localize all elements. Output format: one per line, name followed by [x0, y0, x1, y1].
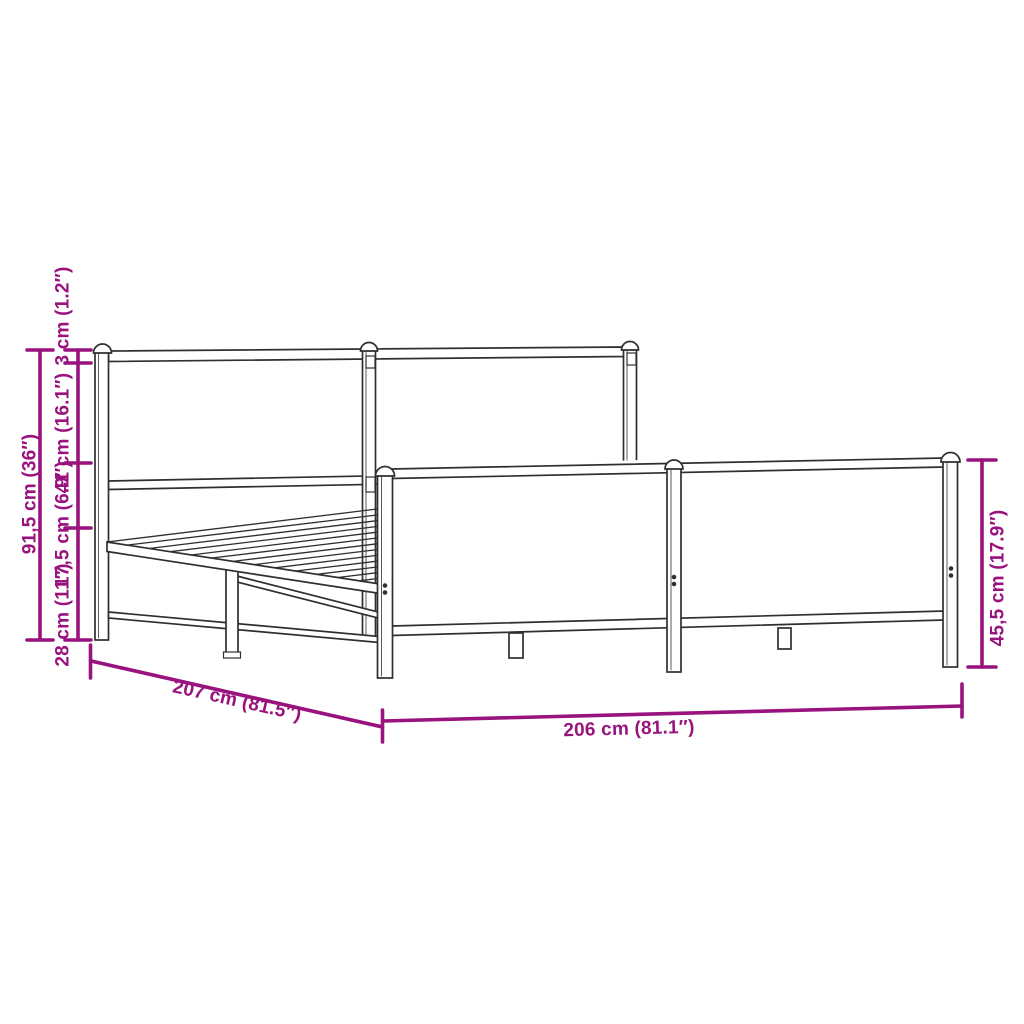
- footboard-height-label: 45,5 cm (17.9″): [989, 510, 1008, 647]
- side-rail: [107, 542, 380, 594]
- post-cap: [361, 343, 378, 352]
- footboard: [376, 453, 961, 684]
- total-height-label: 91,5 cm (36″): [21, 434, 40, 555]
- bed-base: [107, 509, 394, 658]
- bed-frame-line-art: [0, 0, 1024, 1024]
- support-leg: [509, 633, 523, 658]
- post-cap: [94, 344, 112, 353]
- bracket: [366, 356, 375, 368]
- frame-width-label: 206 cm (81.1″): [563, 718, 695, 740]
- top-segment-label: 3 cm (1.2″): [54, 267, 73, 366]
- bracket: [366, 477, 375, 492]
- post-cap: [622, 342, 639, 351]
- bracket: [627, 353, 636, 365]
- product-dimension-diagram: 91,5 cm (36″) 3 cm (1.2″) 41 cm (16.1″) …: [0, 0, 1024, 1024]
- under-clearance-label: 28 cm (11″): [54, 563, 73, 666]
- support-leg: [778, 628, 791, 649]
- support-leg: [226, 566, 238, 656]
